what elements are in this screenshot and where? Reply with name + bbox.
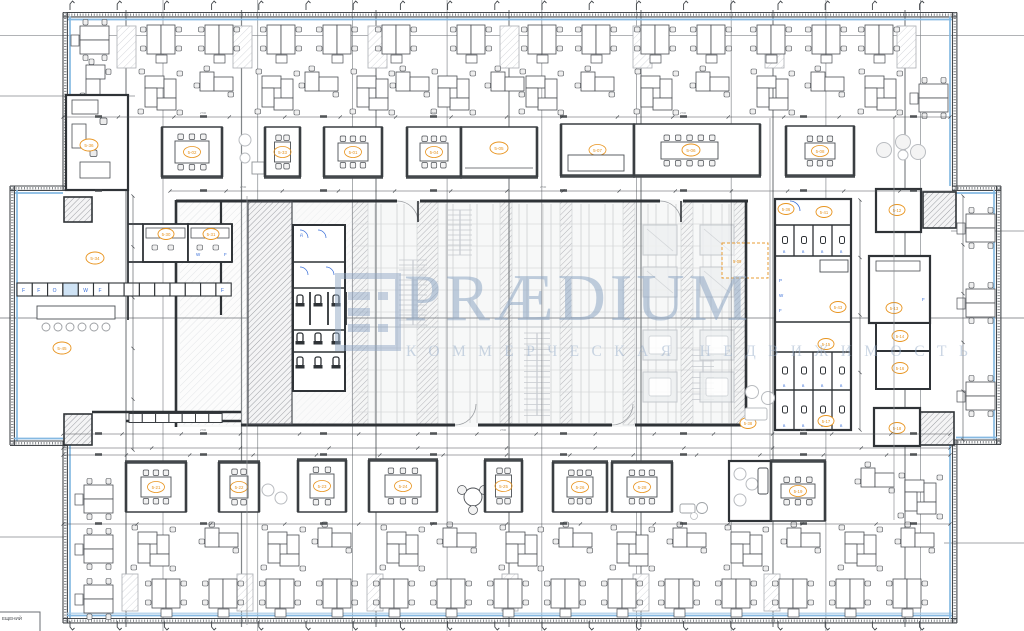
svg-text:5-14: 5-14 — [896, 334, 905, 339]
svg-text:F: F — [221, 288, 224, 294]
svg-text:F: F — [922, 297, 925, 302]
svg-text:5-19: 5-19 — [794, 489, 803, 494]
svg-text:2700: 2700 — [800, 428, 807, 432]
svg-text:ЕЩЕНИЙ: ЕЩЕНИЙ — [2, 614, 22, 621]
svg-text:W: W — [83, 288, 88, 294]
svg-text:5-33: 5-33 — [278, 150, 287, 155]
svg-text:Д: Д — [300, 232, 303, 237]
svg-text:5-45: 5-45 — [57, 346, 67, 351]
svg-text:2700: 2700 — [680, 111, 687, 115]
svg-text:5-17: 5-17 — [822, 419, 831, 424]
svg-text:5-06: 5-06 — [686, 148, 696, 153]
svg-text:КОММЕРЧЕСКАЯ НЕДВИЖИМОСТЬ: КОММЕРЧЕСКАЯ НЕДВИЖИМОСТЬ — [406, 343, 980, 360]
svg-text:2700: 2700 — [200, 111, 207, 115]
svg-text:2700: 2700 — [240, 185, 247, 189]
svg-text:F: F — [37, 288, 40, 294]
svg-text:5-38: 5-38 — [744, 421, 753, 426]
svg-text:5-22: 5-22 — [235, 485, 244, 490]
svg-text:F: F — [779, 308, 782, 313]
svg-text:5-02: 5-02 — [188, 150, 197, 155]
svg-text:5-30: 5-30 — [162, 232, 171, 237]
svg-text:5-41: 5-41 — [820, 210, 829, 215]
svg-text:5-28: 5-28 — [638, 485, 647, 490]
svg-text:5-21: 5-21 — [152, 485, 161, 490]
svg-text:5-23: 5-23 — [318, 484, 327, 489]
svg-text:5-36: 5-36 — [782, 207, 791, 212]
svg-text:5-05: 5-05 — [494, 146, 504, 151]
svg-text:5-34: 5-34 — [90, 256, 100, 261]
svg-text:5-25: 5-25 — [499, 484, 508, 489]
svg-text:5-36: 5-36 — [84, 143, 94, 148]
svg-text:O: O — [53, 288, 57, 294]
svg-text:5-31: 5-31 — [207, 232, 216, 237]
svg-text:5-16: 5-16 — [896, 366, 905, 371]
svg-text:P: P — [779, 278, 782, 283]
svg-text:2700: 2700 — [540, 185, 547, 189]
svg-text:5-43: 5-43 — [834, 305, 843, 310]
svg-text:2700: 2700 — [430, 111, 437, 115]
svg-text:2700: 2700 — [200, 428, 207, 432]
svg-text:PRÆDIUM: PRÆDIUM — [404, 261, 752, 335]
svg-text:5-01: 5-01 — [349, 150, 358, 155]
svg-text:F: F — [22, 288, 25, 294]
svg-text:F: F — [99, 288, 102, 294]
svg-text:5-08: 5-08 — [816, 149, 825, 154]
svg-text:2700: 2700 — [500, 428, 507, 432]
svg-text:5-04: 5-04 — [430, 150, 439, 155]
svg-text:F: F — [224, 252, 227, 257]
svg-text:5-24: 5-24 — [399, 484, 408, 489]
svg-text:5-07: 5-07 — [593, 148, 602, 153]
svg-text:5-26: 5-26 — [576, 485, 585, 490]
